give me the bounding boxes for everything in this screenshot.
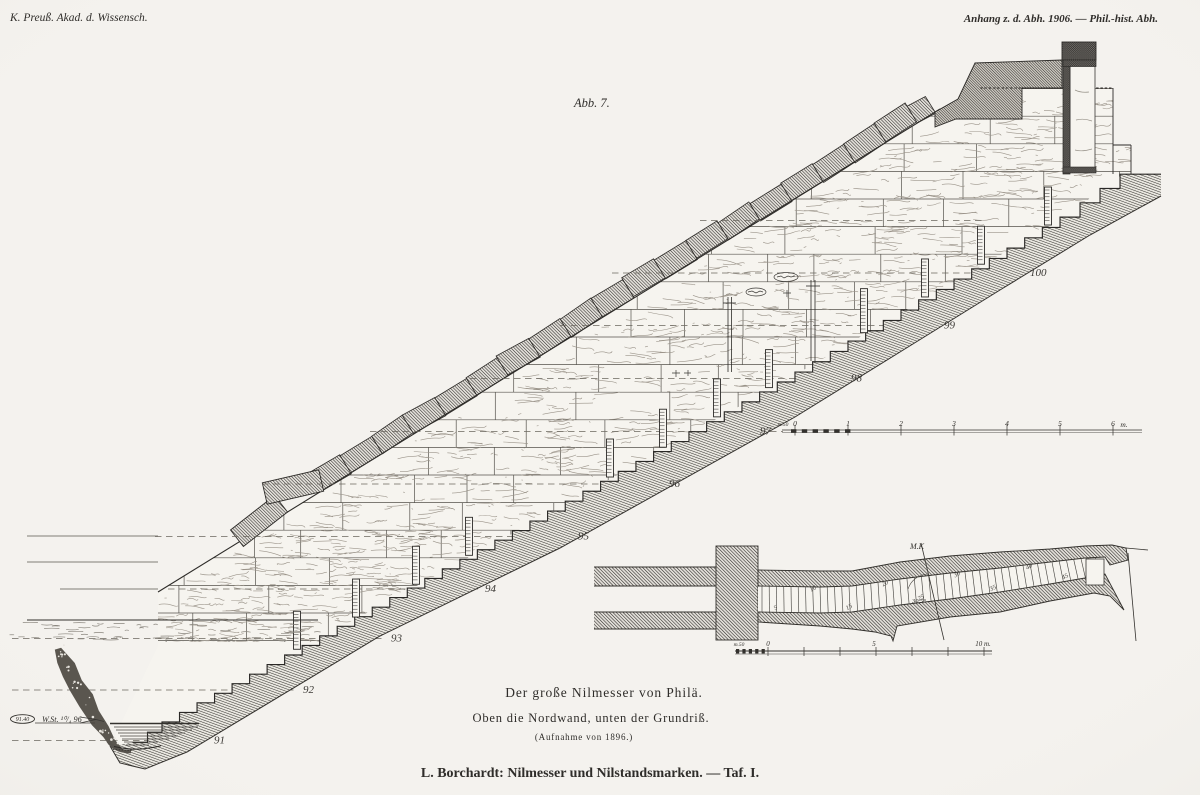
svg-text:98: 98	[851, 373, 863, 385]
svg-text:93: 93	[391, 633, 403, 645]
svg-text:m.50: m.50	[734, 642, 745, 648]
svg-text:10 m.: 10 m.	[975, 640, 991, 648]
svg-text:L. Borchardt: Nilmesser und Ni: L. Borchardt: Nilmesser und Nilstandsmar…	[421, 766, 759, 781]
svg-text:99: 99	[944, 320, 956, 332]
svg-text:Abb. 7.: Abb. 7.	[573, 96, 610, 110]
svg-text:5: 5	[1058, 419, 1062, 428]
svg-text:6: 6	[1111, 419, 1115, 428]
svg-text:94: 94	[485, 583, 497, 595]
svg-text:Oben die Nordwand, unten der G: Oben die Nordwand, unten der Grundriß.	[473, 711, 710, 725]
svg-text:95: 95	[578, 531, 590, 543]
svg-text:m.50: m.50	[778, 422, 789, 428]
svg-text:0: 0	[793, 419, 797, 428]
svg-text:91: 91	[214, 735, 225, 747]
svg-text:K. Preuß. Akad. d. Wissensch.: K. Preuß. Akad. d. Wissensch.	[9, 12, 148, 24]
svg-text:3: 3	[951, 419, 956, 428]
svg-text:0: 0	[766, 640, 770, 648]
svg-text:92: 92	[303, 684, 315, 696]
svg-text:97: 97	[760, 426, 772, 438]
svg-text:Anhang z. d. Abh. 1906. — Phil: Anhang z. d. Abh. 1906. — Phil.-hist. Ab…	[963, 13, 1158, 25]
svg-text:30,5°: 30,5°	[911, 598, 926, 605]
svg-text:M.K: M.K	[909, 542, 925, 551]
svg-text:2: 2	[899, 419, 903, 428]
svg-text:91.40: 91.40	[16, 716, 30, 723]
svg-text:1: 1	[846, 419, 850, 428]
svg-text:m.: m.	[1120, 420, 1127, 429]
svg-text:100: 100	[1030, 267, 1047, 279]
svg-text:96: 96	[669, 478, 681, 490]
svg-text:W.St. ¹⁰/₄ 96: W.St. ¹⁰/₄ 96	[42, 715, 83, 724]
svg-text:(Aufnahme von 1896.): (Aufnahme von 1896.)	[535, 732, 633, 742]
svg-text:5: 5	[872, 640, 876, 648]
svg-text:Der große Nilmesser von Philä.: Der große Nilmesser von Philä.	[505, 685, 703, 700]
svg-text:4: 4	[1005, 419, 1009, 428]
